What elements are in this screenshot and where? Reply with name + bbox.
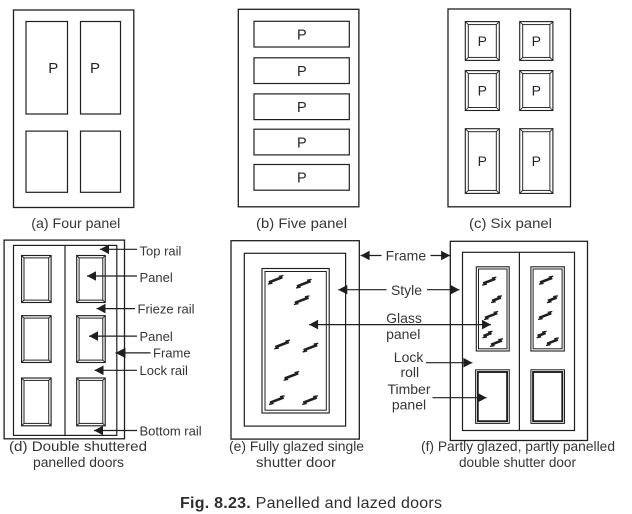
svg-text:P: P xyxy=(532,83,541,99)
svg-text:P: P xyxy=(532,33,541,49)
svg-text:panelled doors: panelled doors xyxy=(33,454,124,470)
svg-text:Glass: Glass xyxy=(386,310,422,326)
svg-text:P: P xyxy=(297,135,307,151)
svg-text:Style: Style xyxy=(391,282,422,298)
svg-text:P: P xyxy=(478,33,487,49)
svg-text:P: P xyxy=(478,83,487,99)
svg-text:Frame: Frame xyxy=(153,346,191,361)
svg-text:panel: panel xyxy=(386,326,420,342)
svg-text:Lock: Lock xyxy=(394,349,425,365)
svg-text:shutter door: shutter door xyxy=(256,454,336,470)
svg-text:(b) Five panel: (b) Five panel xyxy=(256,215,347,231)
svg-text:(a) Four panel: (a) Four panel xyxy=(31,215,120,231)
svg-text:P: P xyxy=(297,64,307,80)
svg-text:P: P xyxy=(532,153,541,169)
svg-text:double shutter door: double shutter door xyxy=(459,454,576,470)
svg-text:P: P xyxy=(48,60,58,77)
svg-text:Frame: Frame xyxy=(386,248,427,264)
svg-text:Bottom rail: Bottom rail xyxy=(140,424,202,439)
svg-text:panel: panel xyxy=(392,396,426,412)
svg-text:roll: roll xyxy=(400,364,419,380)
svg-text:Panel: Panel xyxy=(140,270,173,285)
svg-text:Timber: Timber xyxy=(387,381,430,397)
svg-text:(c) Six panel: (c) Six panel xyxy=(469,215,552,231)
svg-text:(e) Fully glazed single: (e) Fully glazed single xyxy=(229,438,364,454)
svg-text:Panel: Panel xyxy=(140,329,173,344)
svg-text:P: P xyxy=(297,100,307,116)
svg-text:P: P xyxy=(478,153,487,169)
svg-text:P: P xyxy=(297,171,307,187)
svg-text:(d) Double shuttered: (d) Double shuttered xyxy=(9,438,147,454)
svg-text:Frieze rail: Frieze rail xyxy=(138,302,195,317)
svg-text:Top rail: Top rail xyxy=(140,243,182,258)
svg-text:P: P xyxy=(90,60,100,77)
svg-text:(f) Partly glazed, partly pane: (f) Partly glazed, partly panelled xyxy=(421,438,615,454)
svg-text:Lock rail: Lock rail xyxy=(140,363,189,378)
svg-text:Fig. 8.23. Panelled and lazed: Fig. 8.23. Panelled and lazed doors xyxy=(180,495,442,512)
svg-text:P: P xyxy=(297,28,307,44)
